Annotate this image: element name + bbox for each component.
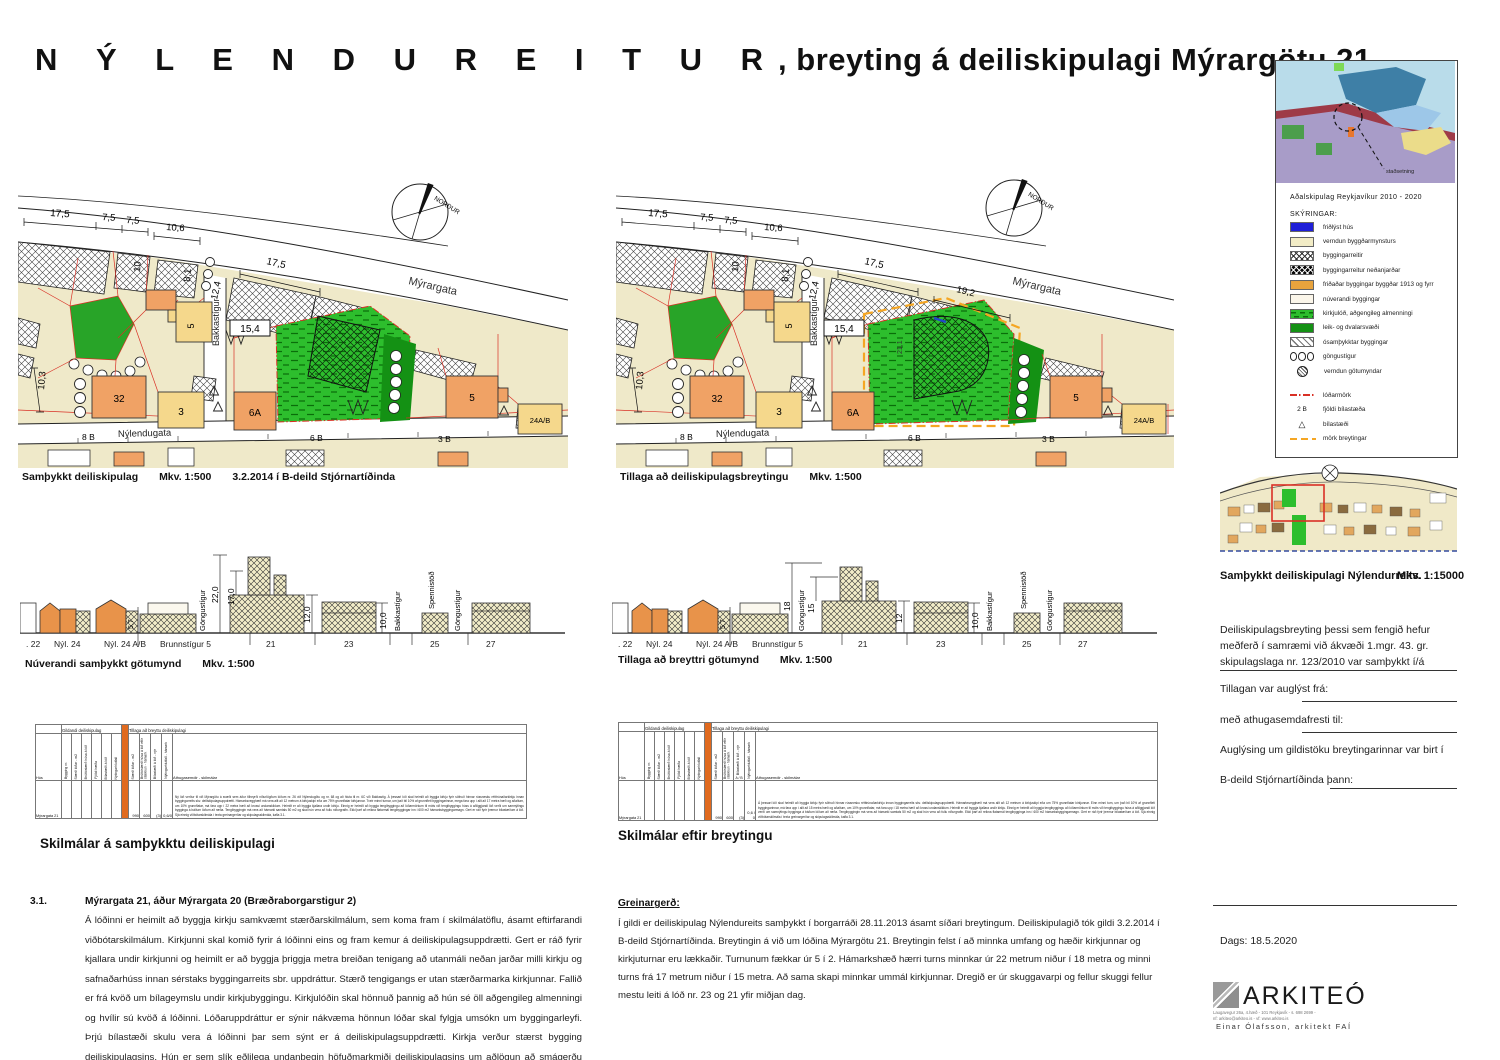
row-v2: 600 bbox=[140, 781, 151, 819]
col-t1: Stærð lóðar - m2 bbox=[132, 754, 136, 779]
caption-plan-left-text: Samþykkt deiliskipulag bbox=[22, 471, 138, 483]
col-notes: Athugasemdir - skilmálar bbox=[173, 734, 527, 781]
firm-address: Laugavegur 26a, 4.hæð - 101 Reykjavík - … bbox=[1213, 1010, 1393, 1023]
lot-23: 23 bbox=[344, 639, 354, 649]
col-c3: Brúttóstærð húsa á lóð bbox=[668, 745, 672, 779]
col-t4: Nýtingarhlutfall - hámark bbox=[165, 742, 169, 779]
label-gongustigur-1: Göngustígur bbox=[797, 589, 806, 631]
lot-27: 27 bbox=[1078, 639, 1088, 649]
parking-count-symbol: 2 B bbox=[1290, 406, 1314, 413]
dim-17-5a: 17,5 bbox=[50, 208, 71, 220]
street-label-bakkastigur: Bakkastígur bbox=[809, 298, 819, 346]
row-v2: 600 bbox=[723, 781, 734, 821]
label-spennistod: Spennistöð bbox=[1019, 571, 1028, 609]
bld-label-24ab: 24A/B bbox=[1134, 416, 1154, 425]
bld-label-5a: 5 bbox=[186, 323, 196, 328]
row-v4: 0,6/0 bbox=[162, 781, 173, 819]
church-base bbox=[230, 595, 304, 633]
bld-label-5b: 5 bbox=[1073, 393, 1079, 404]
lot-6b: 6 B bbox=[908, 433, 921, 443]
field-comment-deadline: með athugasemdafresti til: bbox=[1220, 712, 1343, 728]
col-hus: Hús bbox=[619, 732, 645, 781]
bld-label-32: 32 bbox=[711, 394, 723, 405]
lot-25: 25 bbox=[430, 639, 440, 649]
row-name: Mýrargata 21 bbox=[619, 781, 645, 821]
signature-line-3 bbox=[1302, 732, 1457, 733]
dim-10-3: 10,3 bbox=[36, 371, 49, 390]
swatch-kirkjulod bbox=[1290, 309, 1314, 319]
lot-nyl24ab: Nýl. 24 A/B bbox=[104, 639, 146, 649]
overview-caption: Aðalskipulag Reykjavíkur 2010 - 2020 bbox=[1290, 194, 1457, 201]
col-c4: Fjöldi hæða bbox=[95, 761, 99, 779]
caption-elev-left: Núverandi samþykkt götumynd Mkv. 1:500 bbox=[25, 658, 273, 670]
col-c5: Bílastæði á lóð bbox=[105, 757, 109, 779]
col-c1: Bygging nr. bbox=[648, 762, 652, 779]
table-group-proposed: Tillaga að breyttu deiliskipulagi bbox=[712, 723, 1158, 732]
swatch-fridlyst bbox=[1290, 222, 1314, 232]
lot-boundary-icon bbox=[1290, 394, 1316, 396]
table-separator bbox=[705, 723, 712, 821]
minimap-scale: Mkv. 1:15000 bbox=[1397, 570, 1464, 582]
greinargerd-body: Í gildi er deiliskipulag Nýlendureits sa… bbox=[618, 915, 1166, 1005]
label-bakkastigur: Bakkastígur bbox=[985, 591, 994, 631]
dim-7-5a: 7,5 bbox=[102, 212, 116, 224]
legend-item: byggingarreitur neðanjarðar bbox=[1290, 263, 1457, 277]
section-number: 3.1. bbox=[30, 896, 85, 1060]
bld-label-5a: 5 bbox=[784, 323, 794, 328]
divider-line bbox=[1213, 905, 1457, 906]
parking-triangle-icon: △ bbox=[1290, 420, 1314, 429]
dim-7-5a: 7,5 bbox=[700, 212, 714, 224]
elevation-existing: 5,7 Göngustígur 22,0 17,0 12,0 10,0 Bakk… bbox=[20, 545, 565, 655]
col-notes: Athugasemdir - skilmálar bbox=[756, 732, 1158, 781]
bld-label-32: 32 bbox=[113, 394, 125, 405]
elevation-proposed: 5,7 18 Göngustígur 15 12 10,0 Bakkastígu… bbox=[612, 545, 1157, 655]
dim-18: 18 bbox=[782, 601, 792, 611]
dim-17-5a: 17,5 bbox=[648, 208, 669, 220]
caption-plan-left: Samþykkt deiliskipulag Mkv. 1:500 3.2.20… bbox=[22, 471, 413, 483]
table-separator bbox=[122, 725, 129, 819]
legend-item: ósamþykktar byggingar bbox=[1290, 335, 1457, 349]
col-c6: Nýtingarhlutfall bbox=[115, 757, 119, 779]
swatch-nuverandi bbox=[1290, 294, 1314, 304]
building-5-yellow bbox=[176, 302, 212, 342]
bld-label-3: 3 bbox=[178, 407, 184, 418]
col-c6: Nýtingarhlutfall bbox=[698, 757, 702, 779]
dim-10-6: 10,6 bbox=[166, 222, 185, 234]
lot-brunnstigur5: Brunnstígur 5 bbox=[160, 639, 211, 649]
caption-plan-right-text: Tillaga að deiliskipulagsbreytingu bbox=[620, 471, 788, 483]
caption-plan-right: Tillaga að deiliskipulagsbreytingu Mkv. … bbox=[620, 471, 880, 483]
lot-nyl24ab: Nýl. 24 A/B bbox=[696, 639, 738, 649]
signature-line-1 bbox=[1220, 670, 1457, 671]
page-title: N Ý L E N D U R E I T U R, breyting á de… bbox=[35, 42, 1372, 78]
dim-10: 10 bbox=[730, 261, 742, 272]
minimap-green bbox=[1292, 515, 1306, 545]
section-3-1: 3.1. Mýrargata 21, áður Mýrargata 20 (Br… bbox=[30, 896, 582, 1060]
row-v4: 0,6 / 0 bbox=[745, 781, 756, 821]
row-v1: 990 bbox=[712, 781, 723, 821]
legend-item: 2 Bfjöldi bílastæða bbox=[1290, 403, 1457, 417]
legend-title: SKÝRINGAR: bbox=[1290, 211, 1457, 218]
title-spaced: N Ý L E N D U R E I T U R bbox=[35, 42, 778, 77]
dim-21-1: 21,1 bbox=[897, 340, 904, 354]
dim-8-1: 8,1 bbox=[182, 268, 194, 282]
col-c2: Stærð lóðar - m2 bbox=[75, 754, 79, 779]
dim-10: 10,0 bbox=[378, 612, 388, 629]
dim-15-4: 15,4 bbox=[240, 324, 260, 335]
church-tower-small bbox=[866, 581, 878, 601]
site-plan-existing: Mýrargata Bakkastígur Nýlendugata bbox=[18, 178, 568, 468]
row-v1: 990 bbox=[129, 781, 140, 819]
col-c4: Fjöldi hæða bbox=[678, 761, 682, 779]
dim-22: 22,0 bbox=[210, 586, 220, 603]
legend-item: verndun byggðarmynsturs bbox=[1290, 234, 1457, 248]
col-t2: Brúttóstærð húsa á lóð eftir stækkun - h… bbox=[141, 735, 148, 779]
building-small-orange bbox=[146, 290, 176, 310]
section-body: Á lóðinni er heimilt að byggja kirkju sa… bbox=[85, 911, 582, 1060]
elev-lot-labels: . 22 Nýl. 24 Nýl. 24 A/B Brunnstígur 5 2… bbox=[26, 639, 496, 649]
caption-elev-left-scale: Mkv. 1:500 bbox=[202, 658, 254, 670]
church-tower-small bbox=[274, 575, 286, 595]
approval-text: Deiliskipulagsbreyting þessi sem fengið … bbox=[1220, 622, 1458, 670]
col-t3: Bílastæði á lóð - nýr bbox=[737, 745, 741, 775]
bld-label-3: 3 bbox=[776, 407, 782, 418]
legend-item: núverandi byggingar bbox=[1290, 292, 1457, 306]
street-label-nylendugata: Nýlendugata bbox=[716, 428, 770, 440]
col-c3: Brúttóstærð húsa á lóð bbox=[85, 745, 89, 779]
col-c1: Bygging nr. bbox=[65, 762, 69, 779]
col-t2: Brúttóstærð húsa á lóð eftir stækkun - h… bbox=[724, 735, 731, 779]
dim-7-5b: 7,5 bbox=[724, 215, 738, 227]
terms-table-existing: Gildandi deiliskipulag Tillaga að breytt… bbox=[35, 724, 527, 819]
caption-plan-left-scale: Mkv. 1:500 bbox=[159, 471, 211, 483]
label-spennistod: Spennistöð bbox=[427, 571, 436, 609]
legend-item: leik- og dvalarsvæði bbox=[1290, 321, 1457, 335]
bld-label-6a: 6A bbox=[847, 408, 860, 419]
greinargerd: Greinargerð: Í gildi er deiliskipulag Ný… bbox=[618, 898, 1166, 1005]
site-plan-proposed: Mýrargata Bakkastígur Nýlendugata bbox=[616, 178, 1174, 468]
legend-panel: staðsetning Aðalskipulag Reykjavíkur 201… bbox=[1275, 60, 1458, 458]
church-tower-tall bbox=[248, 557, 270, 595]
lot-23: 23 bbox=[936, 639, 946, 649]
lot-8b: 8 B bbox=[82, 432, 95, 442]
lot-3b: 3 B bbox=[438, 434, 451, 444]
label-bakkastigur: Bakkastígur bbox=[393, 591, 402, 631]
dim-10: 10,0 bbox=[970, 612, 980, 629]
church-base bbox=[822, 601, 896, 633]
caption-table-left: Skilmálar á samþykktu deiliskipulagi bbox=[40, 836, 275, 851]
legend-item: friðaðar byggingar byggðar 1913 og fyrr bbox=[1290, 278, 1457, 292]
col-t1: Stærð lóðar - m2 bbox=[715, 754, 719, 779]
lot-27: 27 bbox=[486, 639, 496, 649]
caption-elev-right-text: Tillaga að breyttri götumynd bbox=[618, 654, 759, 666]
firm-name: ARKITEÓ bbox=[1243, 982, 1367, 1011]
col-t3: Bílastæði á lóð - nýr bbox=[154, 749, 158, 779]
legend-item: kirkjulóð, aðgengileg almenningi bbox=[1290, 306, 1457, 320]
col-t4: Nýtingarhlutfall - hámark bbox=[748, 742, 752, 779]
dim-15: 15 bbox=[806, 603, 816, 613]
lot-21: 21 bbox=[266, 639, 276, 649]
label-gongustigur-1: Göngustígur bbox=[198, 589, 207, 631]
legend-item: verndun götumyndar bbox=[1290, 364, 1457, 378]
change-boundary-icon bbox=[1290, 438, 1316, 440]
date-label: Dags: 18.5.2020 bbox=[1220, 933, 1297, 949]
swatch-leiksvaedi bbox=[1290, 323, 1314, 333]
bld-label-24ab: 24A/B bbox=[530, 416, 550, 425]
dim-12: 12 bbox=[894, 613, 904, 623]
legend-item: mörk breytingar bbox=[1290, 431, 1457, 445]
map-marker-label: staðsetning bbox=[1386, 168, 1414, 175]
street-label-nylendugata: Nýlendugata bbox=[118, 428, 172, 440]
signature-line-4 bbox=[1330, 788, 1457, 789]
plan-sheet: N Ý L E N D U R E I T U R, breyting á de… bbox=[0, 0, 1500, 1060]
label-gongustigur-2: Göngustígur bbox=[1045, 589, 1054, 631]
caption-plan-left-note: 3.2.2014 í B-deild Stjórnartíðinda bbox=[232, 471, 395, 483]
row-note: Ný lóð verður til við Mýrargötu á svæði … bbox=[173, 794, 526, 818]
dim-10: 10 bbox=[132, 261, 144, 272]
dim-15-4: 15,4 bbox=[834, 324, 854, 335]
caption-elev-left-text: Núverandi samþykkt götumynd bbox=[25, 658, 181, 670]
col-hus: Hús bbox=[36, 734, 62, 781]
overview-map: staðsetning bbox=[1276, 61, 1455, 183]
caption-plan-right-scale: Mkv. 1:500 bbox=[809, 471, 861, 483]
play-strip bbox=[380, 334, 416, 422]
dim-5-7: 5,7 bbox=[128, 619, 135, 629]
lot-nyl24: Nýl. 24 bbox=[54, 639, 81, 649]
row-name: Mýrargata 21 bbox=[36, 781, 62, 819]
greinargerd-heading: Greinargerð: bbox=[618, 898, 1166, 909]
swatch-verndun bbox=[1290, 237, 1314, 247]
legend-item: friðlýst hús bbox=[1290, 220, 1457, 234]
elev-lot-labels: . 22 Nýl. 24 Nýl. 24 A/B Brunnstígur 5 2… bbox=[618, 639, 1088, 649]
lot-21: 21 bbox=[858, 639, 868, 649]
section-heading: Mýrargata 21, áður Mýrargata 20 (Bræðrab… bbox=[85, 896, 582, 907]
swatch-nedanjardar bbox=[1290, 265, 1314, 275]
church-tower-tall bbox=[840, 567, 862, 601]
dim-15-4-box: 15,4 bbox=[230, 320, 270, 336]
field-publication: Auglýsing um gildistöku breytingarinnar … bbox=[1220, 742, 1460, 758]
legend-item: △bílastæði bbox=[1290, 417, 1457, 431]
row-note: Á þessari lóð skal heimilt að byggja kir… bbox=[756, 800, 1157, 820]
lot-3b: 3 B bbox=[1042, 434, 1055, 444]
street-protection-icon bbox=[1297, 366, 1308, 377]
lot-brunnstigur5: Brunnstígur 5 bbox=[752, 639, 803, 649]
dim-7-5b: 7,5 bbox=[126, 215, 140, 227]
dim-15-4-box: 15,4 bbox=[824, 320, 864, 336]
caption-table-right: Skilmálar eftir breytingu bbox=[618, 828, 773, 843]
lot-22: . 22 bbox=[26, 639, 40, 649]
dim-10-3: 10,3 bbox=[634, 371, 647, 390]
dim-8-1: 8,1 bbox=[780, 268, 792, 282]
approved-plan-minimap bbox=[1220, 463, 1457, 563]
swatch-osamthykktar bbox=[1290, 337, 1314, 347]
building-5-yellow bbox=[774, 302, 810, 342]
lot-nyl24: Nýl. 24 bbox=[646, 639, 673, 649]
street-label-bakkastigur: Bakkastígur bbox=[211, 298, 221, 346]
arkiteo-logo-icon bbox=[1213, 982, 1239, 1008]
caption-elev-right-scale: Mkv. 1:500 bbox=[780, 654, 832, 666]
lot-6b: 6 B bbox=[310, 433, 323, 443]
col-c5: Bílastæði á lóð bbox=[688, 757, 692, 779]
col-t3-sub: A / B bbox=[734, 776, 744, 780]
dim-5-7: 5,7 bbox=[720, 619, 727, 629]
caption-elev-right: Tillaga að breyttri götumynd Mkv. 1:500 bbox=[618, 654, 850, 666]
signature-line-2 bbox=[1302, 701, 1457, 702]
swatch-fridadar bbox=[1290, 280, 1314, 290]
table-group-proposed: Tillaga að breyttu deiliskipulagi bbox=[129, 725, 527, 734]
firm-logo: ARKITEÓ bbox=[1213, 982, 1367, 1011]
lot-8b: 8 B bbox=[680, 432, 693, 442]
field-bdeild-date: B-deild Stjórnartíðinda þann: bbox=[1220, 772, 1353, 788]
lot-22: . 22 bbox=[618, 639, 632, 649]
legend-item: göngustígur bbox=[1290, 350, 1457, 364]
row-v3: (3) bbox=[151, 781, 162, 819]
minimap-caption: Samþykkt deiliskipulagi Nýlendurreits. bbox=[1220, 570, 1422, 582]
table-group-existing: Gildandi deiliskipulag bbox=[645, 723, 705, 732]
dim-12: 12,0 bbox=[302, 606, 312, 623]
swatch-byggingarreitur bbox=[1290, 251, 1314, 261]
field-advertised-from: Tillagan var auglýst frá: bbox=[1220, 681, 1328, 697]
table-group-existing: Gildandi deiliskipulag bbox=[62, 725, 122, 734]
legend-item: lóðarmörk bbox=[1290, 388, 1457, 402]
bld-label-6a: 6A bbox=[249, 408, 262, 419]
terms-table-proposed: Gildandi deiliskipulag Tillaga að breytt… bbox=[618, 722, 1158, 821]
firm-architect: Einar Ólafsson, arkitekt FAÍ bbox=[1216, 1022, 1352, 1031]
legend-item: byggingarreitir bbox=[1290, 249, 1457, 263]
bld-label-5b: 5 bbox=[469, 393, 475, 404]
lot-25: 25 bbox=[1022, 639, 1032, 649]
label-gongustigur-2: Göngustígur bbox=[453, 589, 462, 631]
path-circles-icon bbox=[1290, 352, 1314, 361]
dim-10-6: 10,6 bbox=[764, 222, 783, 234]
row-v3: (3) bbox=[734, 781, 745, 821]
dim-17: 17,0 bbox=[226, 588, 236, 605]
col-c2: Stærð lóðar - m2 bbox=[658, 754, 662, 779]
